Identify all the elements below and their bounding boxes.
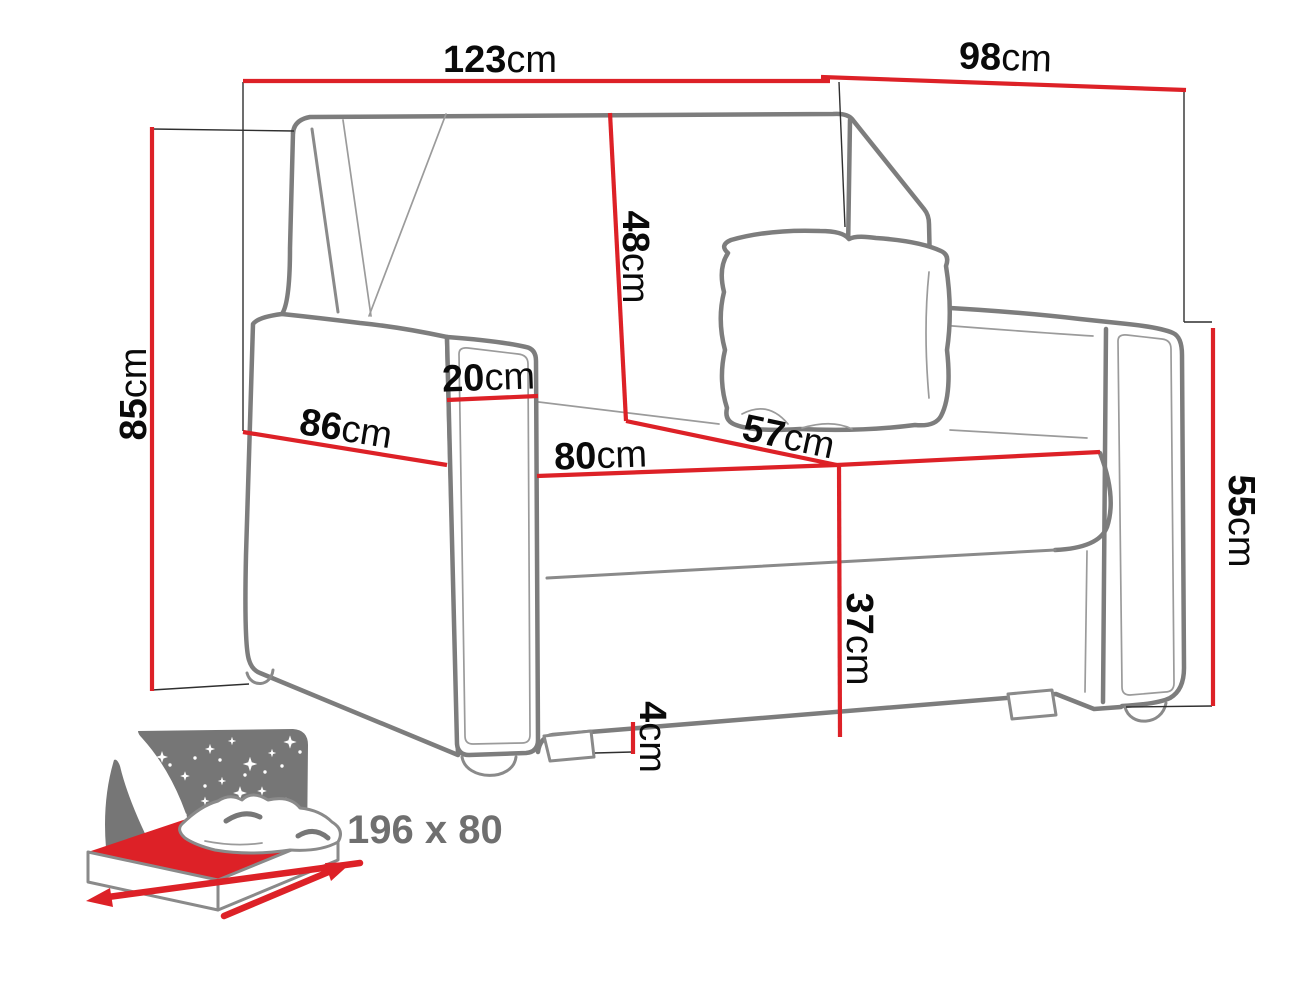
dim-label-armrestheight-55: 55cm [1220,475,1262,568]
base-right-line [1085,551,1087,692]
right-armrest-inner-edge [1103,329,1106,702]
seat-cushion-seam [547,550,1055,578]
backrest-crease [343,120,371,316]
front-block-foot [544,731,594,761]
backrest-right-edge [848,120,850,252]
dim-label-leg-4: 4cm [631,701,673,773]
backrest-left-edge [282,133,293,314]
right-armrest-top-line [940,325,1093,336]
dim-label-depth-98: 98cm [958,35,1052,80]
dim-label-width-123: 123cm [443,39,557,81]
dim-label-seatheight-37: 37cm [838,593,880,686]
sleeping-size-icon: 196 x 80 [86,729,503,916]
dim-line-seat-front-edge [837,452,1100,465]
furniture-dimension-diagram: 123cm 98cm 85cm 48cm 20cm 86cm 80cm 57cm… [0,0,1314,985]
pillow [721,231,950,430]
dim-label-backrest-48: 48cm [614,211,656,304]
right-armrest-outline [931,307,1184,706]
left-armrest-side [245,314,458,755]
dim-label-height-85: 85cm [113,348,155,441]
right-block-foot [1008,690,1056,719]
width-arrowhead [325,862,352,881]
diagram-canvas: 123cm 98cm 85cm 48cm 20cm 86cm 80cm 57cm… [0,0,1314,985]
dim-label-seatwidth-80: 80cm [553,433,647,478]
left-foot-dome [462,757,516,775]
length-arrowhead [86,888,113,907]
right-armrest-stitch [1118,335,1174,695]
dim-label-armrest-20: 20cm [441,355,535,400]
backrest-crease [312,129,338,312]
backrest-crease [369,114,446,316]
seat-back-line-right [950,430,1087,438]
sleeping-size-label: 196 x 80 [347,808,503,852]
